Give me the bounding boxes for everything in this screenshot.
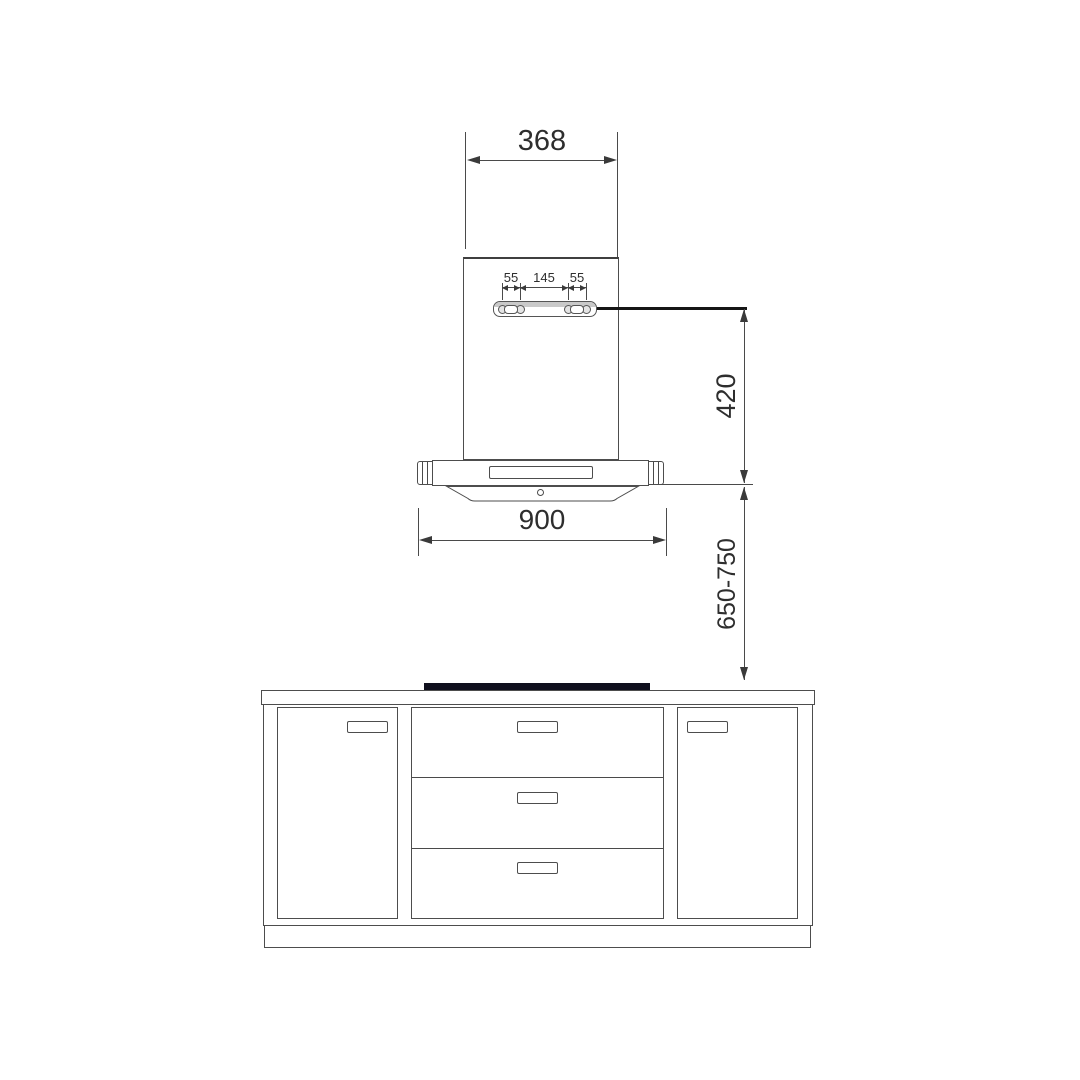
door-handle-right (687, 721, 728, 733)
dim-label-bracket-left: 55 (495, 271, 527, 285)
canopy-cap-line (427, 462, 428, 484)
dim-hood-width-line (431, 540, 654, 541)
canopy-vent-panel (489, 466, 593, 479)
dim-label-chimney-width: 368 (492, 126, 592, 158)
arrowhead-left (502, 285, 508, 291)
arrowhead-up (740, 487, 748, 500)
door-handle-left (347, 721, 388, 733)
chimney-left-line (465, 132, 466, 249)
extension-line (649, 484, 753, 485)
drawer-handle-1 (517, 721, 558, 733)
plinth (264, 925, 811, 948)
dim-label-hood-height: 420 (712, 356, 740, 436)
canopy-cap-line (653, 462, 654, 484)
arrowhead-up (740, 309, 748, 322)
bracket-slot (504, 305, 518, 314)
canopy-end-cap-left (417, 461, 433, 485)
arrowhead-down (740, 667, 748, 680)
arrowhead-right (653, 536, 666, 544)
arrowhead-left (520, 285, 526, 291)
dim-hood-height-line (744, 309, 745, 483)
arrowhead-right (604, 156, 617, 164)
cabinet-door-left (277, 707, 398, 919)
drawer-handle-3 (517, 862, 558, 874)
drawer-divider (412, 848, 663, 849)
drawer-divider (412, 777, 663, 778)
cabinet-door-right (677, 707, 798, 919)
bracket-leader-line (597, 307, 747, 310)
bracket-slot (570, 305, 584, 314)
installation-diagram: 368 55 145 55 900 (0, 0, 1080, 1080)
dim-install-height-line (744, 487, 745, 680)
arrowhead-down (740, 470, 748, 483)
canopy-cap-line (658, 462, 659, 484)
arrowhead-left (568, 285, 574, 291)
arrowhead-right (580, 285, 586, 291)
dim-label-hood-width: 900 (492, 505, 592, 536)
dim-label-bracket-right: 55 (561, 271, 593, 285)
extension-line (418, 508, 419, 556)
dim-chimney-width-line (479, 160, 605, 161)
extension-line (666, 508, 667, 556)
countertop (261, 690, 815, 705)
drawer-stack (411, 707, 664, 919)
arrowhead-left (467, 156, 480, 164)
extension-line (586, 283, 587, 300)
arrowhead-left (419, 536, 432, 544)
dim-label-bracket-center: 145 (526, 271, 562, 285)
canopy-cap-line (422, 462, 423, 484)
drawer-handle-2 (517, 792, 558, 804)
dim-label-install-height: 650-750 (714, 524, 740, 644)
canopy-center-screw (537, 489, 544, 496)
canopy-end-cap-right (648, 461, 664, 485)
chimney-right-line (617, 132, 618, 258)
